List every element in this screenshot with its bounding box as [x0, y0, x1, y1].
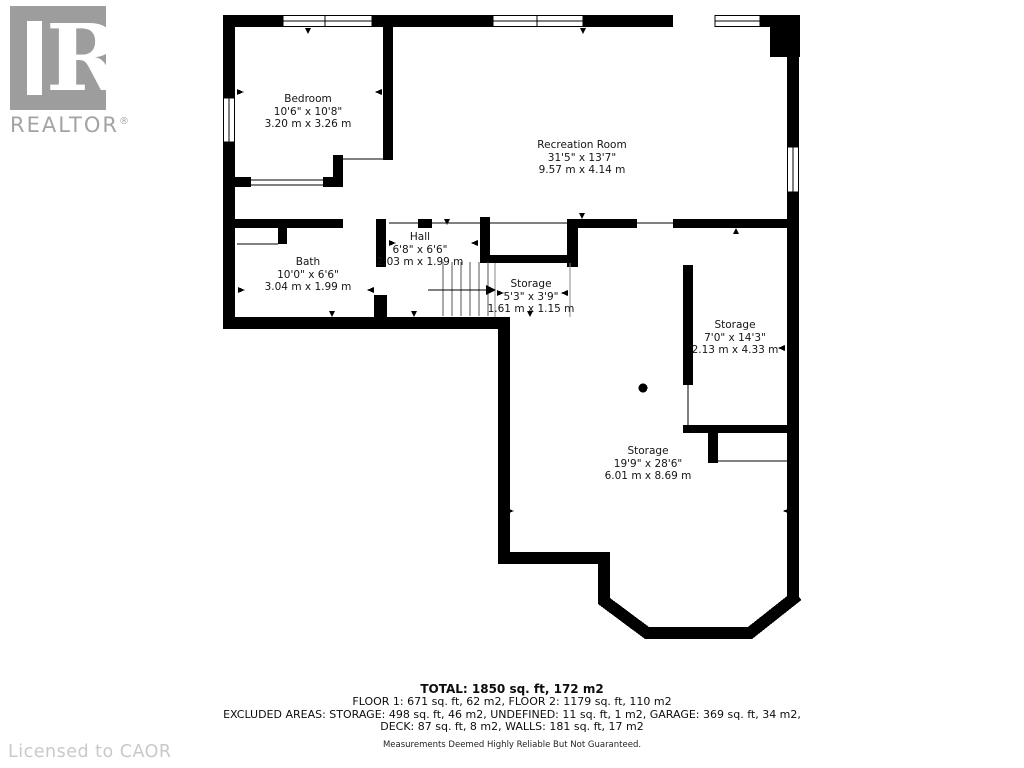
room-size-imperial: 7'0" x 14'3" — [692, 332, 779, 345]
floors-area-line: FLOOR 1: 671 sq. ft, 62 m2, FLOOR 2: 117… — [0, 696, 1024, 709]
room-label-bedroom: Bedroom 10'6" x 10'8" 3.20 m x 3.26 m — [265, 93, 352, 131]
room-size-imperial: 5'3" x 3'9" — [488, 291, 575, 304]
room-size-metric: 6.01 m x 8.69 m — [605, 470, 692, 483]
room-size-imperial: 10'0" x 6'6" — [265, 269, 352, 282]
room-size-metric: 3.04 m x 1.99 m — [265, 281, 352, 294]
room-name: Storage — [605, 445, 692, 458]
stair-direction-arrow-icon — [428, 285, 496, 295]
room-name: Bedroom — [265, 93, 352, 106]
room-label-storage-main: Storage 19'9" x 28'6" 6.01 m x 8.69 m — [605, 445, 692, 483]
floor-plan-page: R REALTOR® — [0, 0, 1024, 768]
room-label-recreation-room: Recreation Room 31'5" x 13'7" 9.57 m x 4… — [537, 139, 626, 177]
room-label-hall: Hall 6'8" x 6'6" 2.03 m x 1.99 m — [377, 231, 464, 269]
room-size-metric: 3.20 m x 3.26 m — [265, 118, 352, 131]
room-size-imperial: 10'6" x 10'8" — [265, 106, 352, 119]
room-name: Recreation Room — [537, 139, 626, 152]
room-name: Storage — [488, 278, 575, 291]
room-name: Hall — [377, 231, 464, 244]
room-name: Bath — [265, 256, 352, 269]
stairs-icon — [443, 262, 488, 316]
room-name: Storage — [692, 319, 779, 332]
room-label-bath: Bath 10'0" x 6'6" 3.04 m x 1.99 m — [265, 256, 352, 294]
total-area-line: TOTAL: 1850 sq. ft, 172 m2 — [0, 682, 1024, 696]
excluded-areas-line-2: DECK: 87 sq. ft, 8 m2, WALLS: 181 sq. ft… — [0, 721, 1024, 734]
room-size-metric: 2.03 m x 1.99 m — [377, 256, 464, 269]
floor-plan-drawing — [0, 0, 1024, 768]
room-size-metric: 2.13 m x 4.33 m — [692, 344, 779, 357]
room-size-metric: 9.57 m x 4.14 m — [537, 164, 626, 177]
room-size-imperial: 19'9" x 28'6" — [605, 458, 692, 471]
room-label-storage-right: Storage 7'0" x 14'3" 2.13 m x 4.33 m — [692, 319, 779, 357]
license-text: Licensed to CAOR — [8, 742, 172, 762]
room-size-imperial: 6'8" x 6'6" — [377, 244, 464, 257]
room-size-metric: 1.61 m x 1.15 m — [488, 303, 575, 316]
area-summary: TOTAL: 1850 sq. ft, 172 m2 FLOOR 1: 671 … — [0, 682, 1024, 734]
support-post-icon — [639, 384, 648, 393]
room-size-imperial: 31'5" x 13'7" — [537, 152, 626, 165]
room-label-storage-small: Storage 5'3" x 3'9" 1.61 m x 1.15 m — [488, 278, 575, 316]
